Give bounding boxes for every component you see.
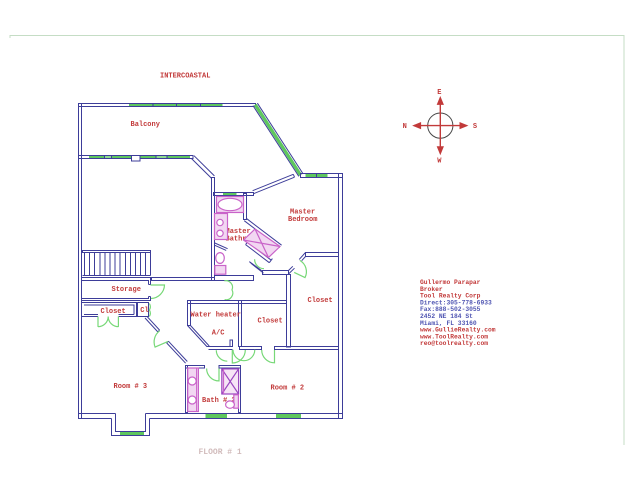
svg-text:E: E — [437, 89, 441, 97]
svg-text:INTERCOASTAL: INTERCOASTAL — [160, 73, 210, 81]
svg-text:Closet: Closet — [101, 308, 126, 316]
svg-text:reo@toolrealty.com: reo@toolrealty.com — [420, 340, 488, 347]
svg-text:N: N — [403, 123, 407, 131]
svg-text:Bedroom: Bedroom — [288, 216, 317, 224]
svg-text:Balcony: Balcony — [131, 121, 161, 129]
svg-text:FLOOR # 1: FLOOR # 1 — [199, 448, 242, 457]
svg-text:Room # 3: Room # 3 — [114, 383, 148, 391]
svg-text:Room # 2: Room # 2 — [271, 385, 305, 393]
svg-text:S: S — [473, 123, 477, 131]
svg-text:Storage: Storage — [112, 286, 141, 294]
svg-text:Water heater: Water heater — [191, 312, 241, 320]
svg-text:Cl: Cl — [140, 307, 148, 315]
svg-text:Closet: Closet — [308, 297, 333, 305]
svg-text:A/C: A/C — [212, 330, 225, 338]
svg-text:Closet: Closet — [258, 318, 283, 326]
